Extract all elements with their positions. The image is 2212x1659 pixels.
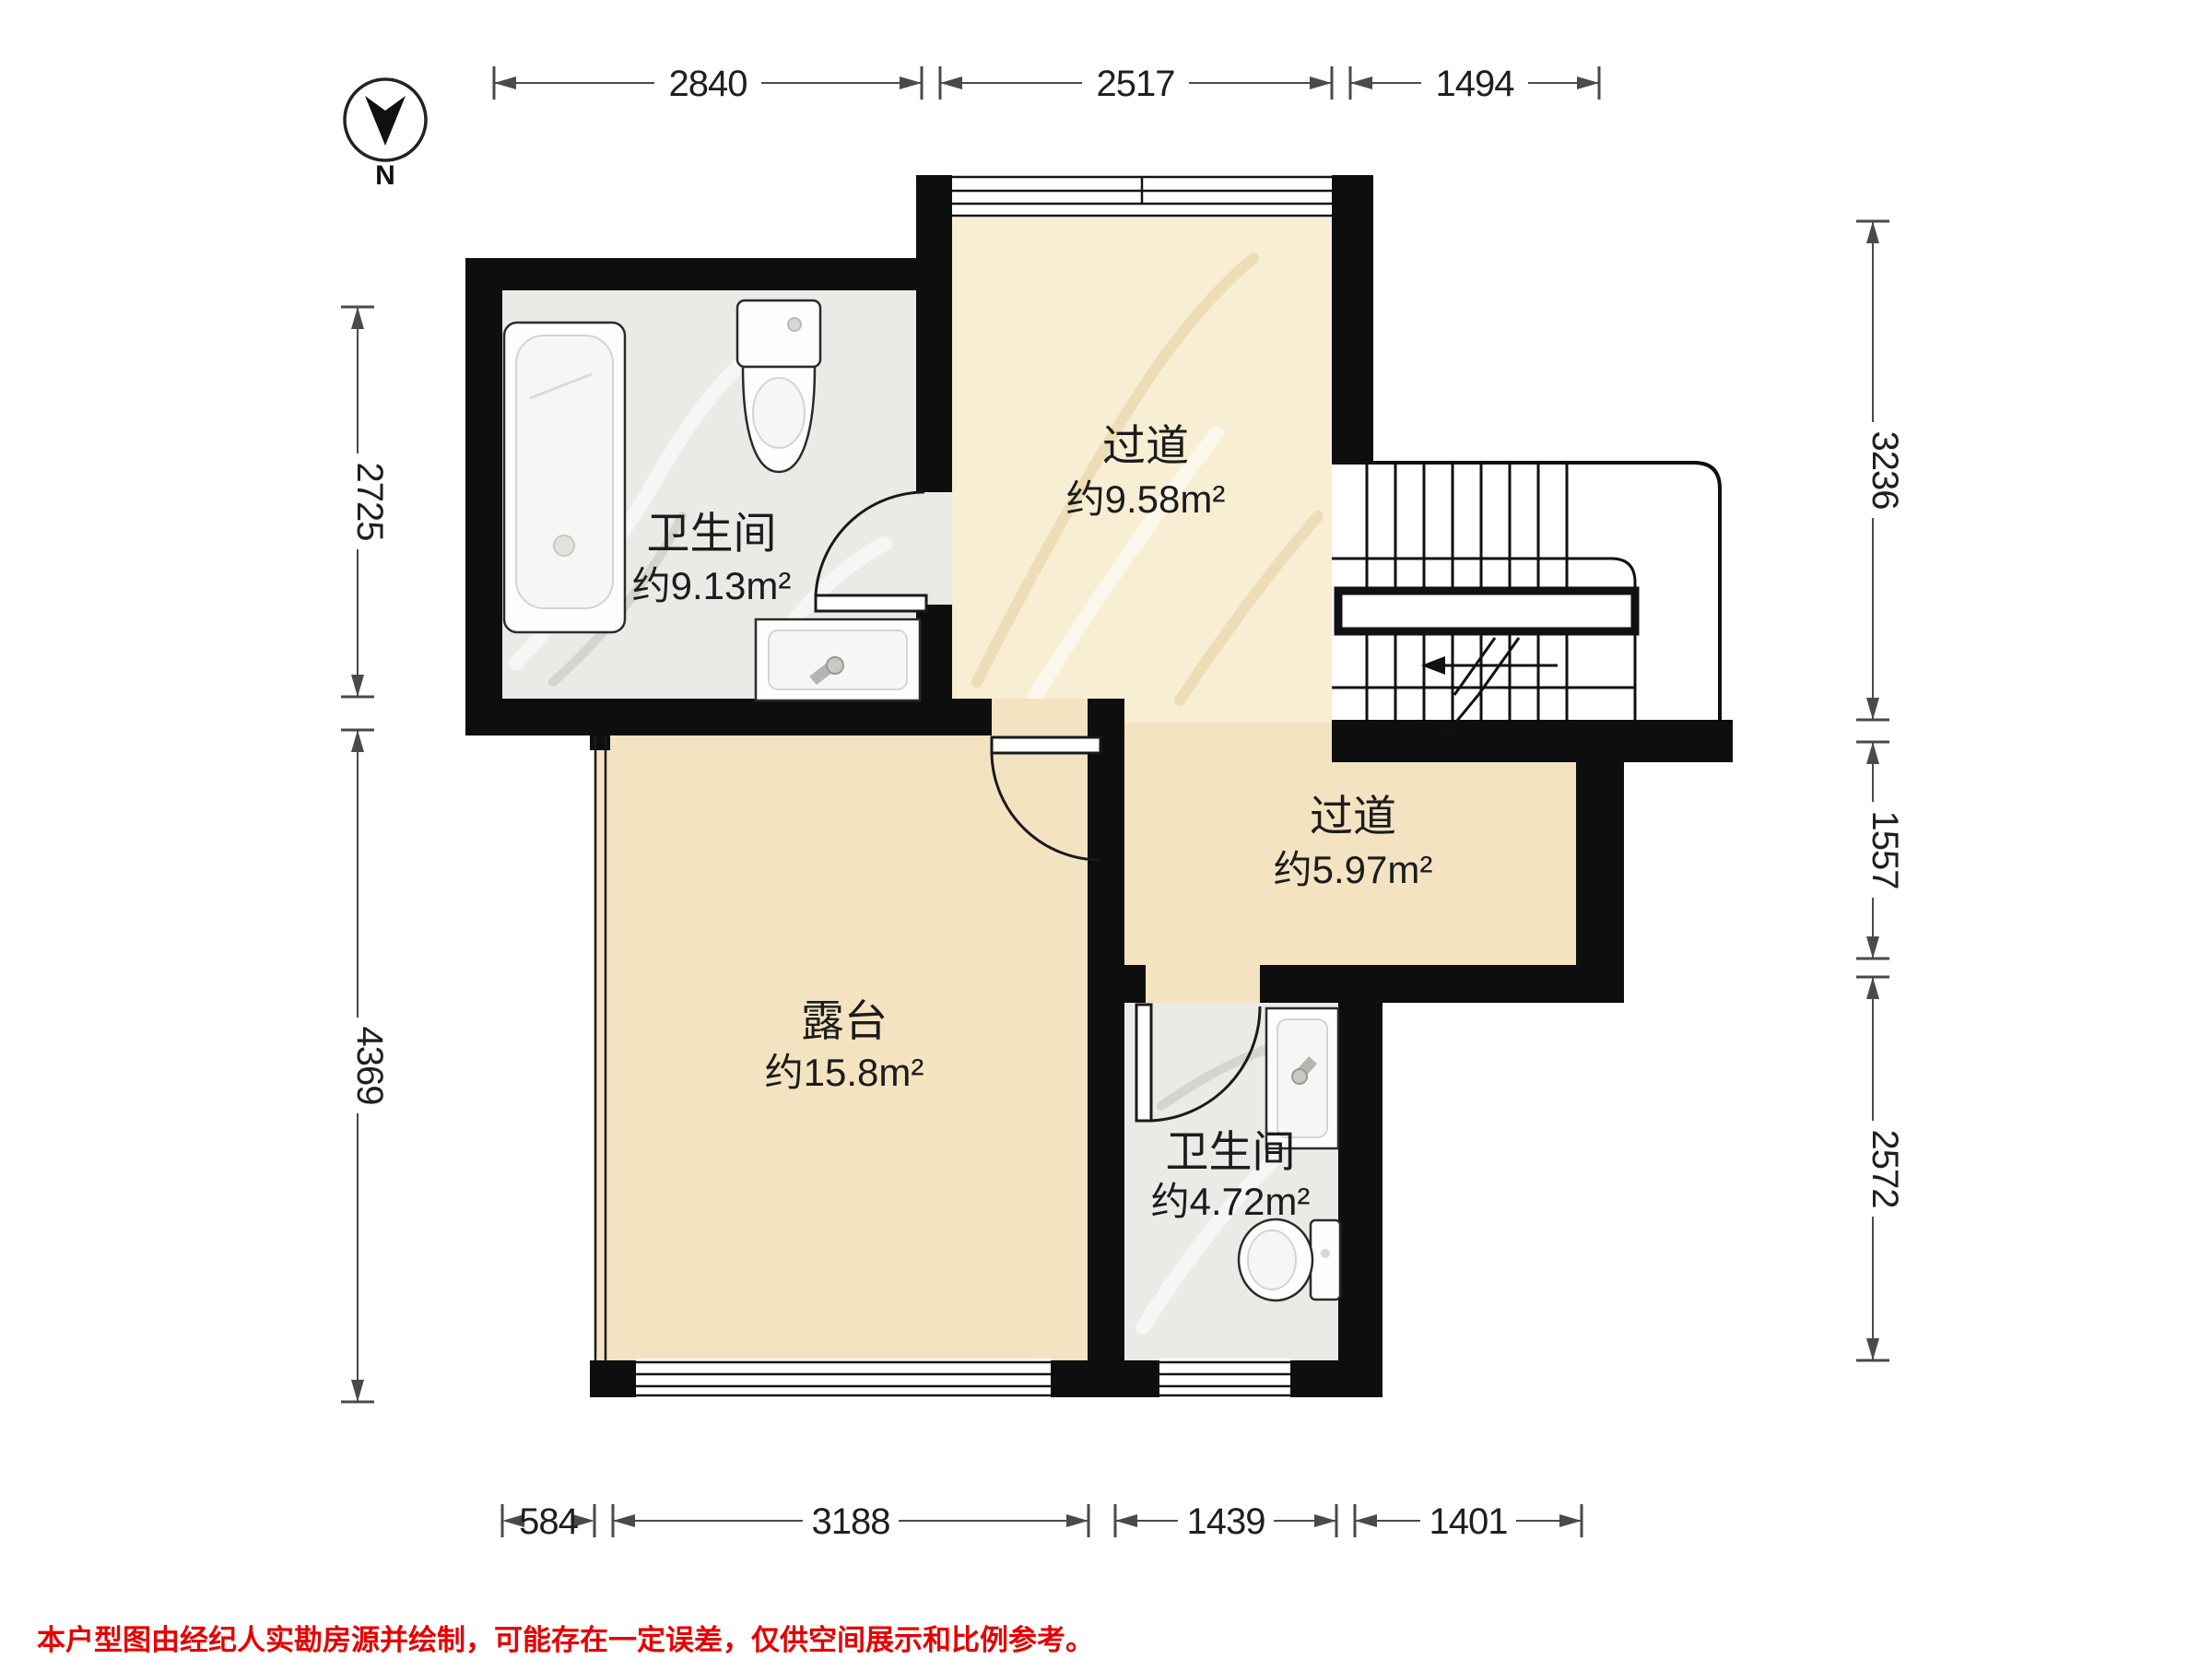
dim-label: 584 xyxy=(519,1501,578,1542)
dim-left-1: 2725 xyxy=(341,307,390,697)
staircase xyxy=(1332,463,1720,737)
wall-bathroom-lower-top-a xyxy=(1124,965,1146,1003)
floor-plan-canvas: N xyxy=(0,0,2212,1659)
dim-bottom-1: 584 xyxy=(502,1501,594,1542)
dim-right-2: 1557 xyxy=(1856,742,1905,959)
room-area: 约9.13m² xyxy=(632,564,792,607)
room-name: 卫生间 xyxy=(647,509,777,558)
window-bathroom-lower xyxy=(1159,1359,1290,1399)
wall-bathroom-upper-right-a xyxy=(916,217,952,492)
dim-label: 2572 xyxy=(1865,1130,1905,1208)
dim-label: 1557 xyxy=(1865,811,1905,889)
north-indicator: N xyxy=(345,79,426,191)
wall-bathroom-upper-top xyxy=(465,258,952,290)
stair-inner-boundary xyxy=(1567,559,1635,720)
bathtub xyxy=(504,323,625,632)
window-terrace xyxy=(636,1359,1051,1399)
dim-label: 2517 xyxy=(1097,64,1175,104)
floor-terrace xyxy=(594,735,1088,1360)
stair-treads-lower xyxy=(1332,632,1635,720)
room-area: 约15.8m² xyxy=(765,1051,924,1094)
dim-label: 2840 xyxy=(669,64,747,104)
sink-upper xyxy=(756,619,920,700)
room-name: 过道 xyxy=(1310,792,1396,841)
dimensions-right: 3236 1557 2572 xyxy=(1856,221,1905,1360)
room-name: 露台 xyxy=(801,996,888,1045)
wall-bathroom-lower-top-b xyxy=(1260,965,1338,1003)
wall-bottom-middle xyxy=(1051,1360,1159,1397)
dim-label: 4369 xyxy=(349,1027,390,1105)
threshold-bathroom-lower xyxy=(1146,965,1260,1003)
wall-terrace-bottom-left xyxy=(590,1360,636,1397)
dim-label: 2725 xyxy=(349,463,390,541)
wall-bathroom-lower-left xyxy=(1088,699,1124,1397)
floors xyxy=(502,217,1576,1360)
dim-top-3: 1494 xyxy=(1350,64,1599,104)
dim-right-1: 3236 xyxy=(1856,221,1905,720)
wall-bathroom-lower-bottom xyxy=(1290,1360,1382,1397)
dim-label: 3188 xyxy=(812,1501,890,1542)
wall-bathroom-upper-left xyxy=(465,258,502,735)
dim-left-2: 4369 xyxy=(341,730,390,1402)
dim-top-2: 2517 xyxy=(940,64,1332,104)
dim-label: 1401 xyxy=(1430,1501,1508,1542)
wall-railing-nub xyxy=(590,734,610,750)
room-area: 约5.97m² xyxy=(1274,848,1433,891)
threshold-bathroom-upper xyxy=(916,492,952,605)
wall-stair-bottom xyxy=(1332,720,1733,762)
dim-label: 3236 xyxy=(1865,431,1905,510)
room-name: 过道 xyxy=(1102,421,1189,470)
room-name: 卫生间 xyxy=(1166,1127,1296,1176)
wall-bathroom-upper-bottom xyxy=(465,699,992,735)
wall-bathroom-lower-right xyxy=(1338,965,1382,1397)
dim-top-1: 2840 xyxy=(494,64,922,104)
dim-right-3: 2572 xyxy=(1856,977,1905,1360)
dimensions-top: 2840 2517 1494 xyxy=(494,64,1599,104)
dim-label: 1439 xyxy=(1187,1501,1265,1542)
room-bathroom-lower-label: 卫生间 约4.72m² xyxy=(1151,1127,1311,1223)
room-area: 约9.58m² xyxy=(1066,477,1226,521)
wall-hallway-lower-bottom xyxy=(1382,965,1624,1003)
threshold-terrace xyxy=(992,699,1102,735)
stair-treads-upper xyxy=(1332,463,1567,590)
disclaimer-text: 本户型图由经纪人实勘房源并绘制，可能存在一定误差，仅供空间展示和比例参考。 xyxy=(37,1624,1094,1656)
room-area: 约4.72m² xyxy=(1151,1180,1311,1223)
dim-bottom-3: 1439 xyxy=(1115,1501,1336,1542)
dimensions-bottom: 584 3188 1439 1401 xyxy=(502,1501,1582,1542)
dimensions-left: 2725 4369 xyxy=(341,307,390,1402)
stair-landing-rail xyxy=(1338,591,1635,631)
dim-label: 1494 xyxy=(1436,64,1515,104)
toilet-lower xyxy=(1239,1219,1340,1300)
wall-hallway-upper-right xyxy=(1332,175,1373,461)
wall-hallway-upper-cap-left xyxy=(916,175,952,217)
dim-bottom-2: 3188 xyxy=(613,1501,1088,1542)
dim-bottom-4: 1401 xyxy=(1355,1501,1582,1542)
window-hallway-upper xyxy=(952,173,1332,218)
north-label: N xyxy=(375,160,395,191)
